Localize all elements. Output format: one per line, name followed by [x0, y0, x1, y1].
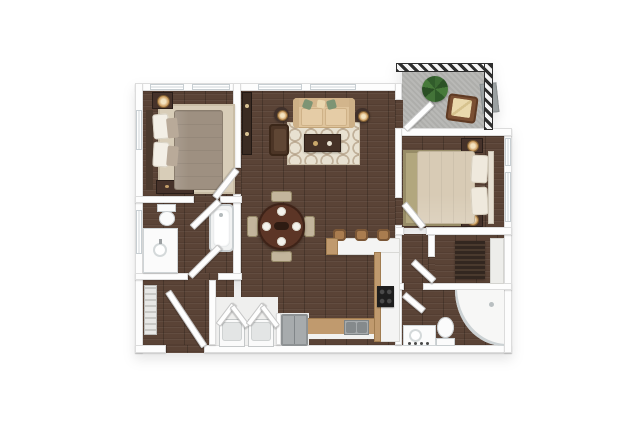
bedroom-1-comforter	[174, 110, 223, 190]
bedroom-2-headboard	[488, 151, 494, 224]
window-bedroom-1-top-left	[150, 84, 184, 90]
wall-bedroom-1-south-a	[135, 196, 194, 203]
bathroom-2-vanity	[403, 325, 436, 346]
bedroom-1-pillow-taupe-bottom	[166, 146, 179, 167]
wall-laundry-west	[209, 280, 216, 345]
wall-bedroom-2-south-b	[426, 227, 512, 235]
potted-plant	[422, 76, 448, 102]
floorplan-screenshot	[0, 0, 640, 427]
window-bathroom-1-left	[136, 210, 142, 254]
washer-top	[222, 322, 242, 341]
bathtub-drain	[219, 213, 223, 217]
vanity-knob-1	[408, 342, 411, 345]
wall-bath-1-south-a	[135, 273, 188, 280]
wall-bedroom-2-south-a	[395, 227, 404, 235]
cooktop	[377, 286, 394, 307]
wall-bath-2-north-b	[423, 283, 512, 290]
bedroom-2-comforter	[417, 151, 475, 224]
bathroom-2-toilet-tank	[436, 338, 455, 346]
bathroom-1-sink	[153, 243, 167, 257]
sofa-arm-left	[293, 98, 299, 128]
closet-shelf	[490, 238, 504, 284]
wall-living-east-upper	[395, 83, 402, 100]
doorway-bedroom-2	[395, 198, 403, 225]
vanity-knob-3	[420, 342, 423, 345]
sink-basin-right	[357, 322, 367, 333]
place-setting-west	[262, 222, 271, 231]
bedroom-2-pillow-lower	[470, 187, 488, 216]
wall-living-east-mid	[395, 128, 402, 198]
sofa-cushion-right	[325, 108, 347, 126]
dining-chair-north	[271, 191, 292, 202]
kitchen-sink	[344, 320, 369, 335]
media-console	[242, 92, 252, 155]
doorway-entry	[166, 345, 204, 353]
sofa-arm-right	[349, 98, 355, 128]
bedroom-1-lamp	[157, 95, 170, 108]
vanity-knob-2	[414, 342, 417, 345]
wall-bath-1-south-b	[218, 273, 242, 280]
bathroom-1-faucet	[159, 239, 162, 244]
window-living-top-right	[310, 84, 356, 90]
bedroom-1-pillow-taupe-top	[166, 117, 179, 138]
bathroom-2-toilet-bowl	[437, 317, 454, 338]
linen-shelves	[144, 285, 157, 335]
bathroom-1-toilet-bowl	[159, 211, 175, 226]
vanity-knob-4	[426, 342, 429, 345]
balcony-railing-right	[484, 63, 493, 130]
window-bedroom-1-left	[136, 110, 142, 150]
dining-table	[258, 203, 305, 250]
dryer-top	[251, 322, 271, 341]
place-setting-south	[277, 237, 286, 246]
bar-stool-3	[377, 229, 390, 241]
bathroom-2-sink	[409, 329, 422, 342]
armchair-cushion	[274, 129, 286, 151]
coffee-table	[304, 134, 341, 152]
patio-chair-cushion	[451, 98, 472, 118]
console-decor-2	[245, 132, 249, 136]
console-decor-1	[245, 104, 249, 108]
apartment-floorplan	[0, 0, 640, 427]
dining-chair-east	[304, 216, 315, 237]
balcony-railing-top	[396, 63, 493, 72]
doorway-bathroom-2	[404, 283, 423, 290]
dining-chair-west	[247, 216, 258, 237]
wall-closet-west	[428, 235, 435, 257]
window-living-top-left	[258, 84, 302, 90]
window-bedroom-2-right-lower	[505, 172, 511, 222]
dresser-handle-left	[165, 185, 169, 188]
sofa-cushion-left	[301, 108, 323, 126]
bar-stool-2	[355, 229, 368, 241]
place-setting-east	[292, 222, 301, 231]
end-table-lamp-left	[277, 110, 288, 121]
sink-basin-left	[346, 322, 356, 333]
breakfast-bar-wood-cap	[326, 238, 338, 255]
window-bedroom-1-top-right	[192, 84, 230, 90]
sofa	[293, 98, 355, 128]
wall-bottom-left-of-entry	[135, 345, 166, 353]
window-bedroom-2-right-upper	[505, 138, 511, 166]
bedroom-2-pillow-upper	[470, 155, 488, 184]
patio-chair	[445, 93, 478, 124]
refrigerator	[281, 314, 308, 346]
shower-drain	[489, 302, 494, 307]
coffee-table-decor-1	[313, 141, 318, 146]
wall-bath-1-east	[233, 194, 241, 280]
bathroom-1-vanity	[143, 228, 178, 273]
wall-bedroom-1-south-b	[220, 196, 242, 203]
doorway-balcony	[395, 100, 403, 128]
closet-hanging-clothes	[455, 241, 485, 279]
coffee-table-decor-2	[327, 141, 332, 146]
wall-bedroom-2-top	[395, 128, 512, 136]
dining-chair-south	[271, 251, 292, 262]
tan-pillow-center	[316, 99, 325, 108]
end-table-lamp-right	[358, 111, 369, 122]
place-setting-north	[277, 207, 286, 216]
armchair	[269, 124, 289, 156]
table-centerpiece	[274, 222, 289, 230]
